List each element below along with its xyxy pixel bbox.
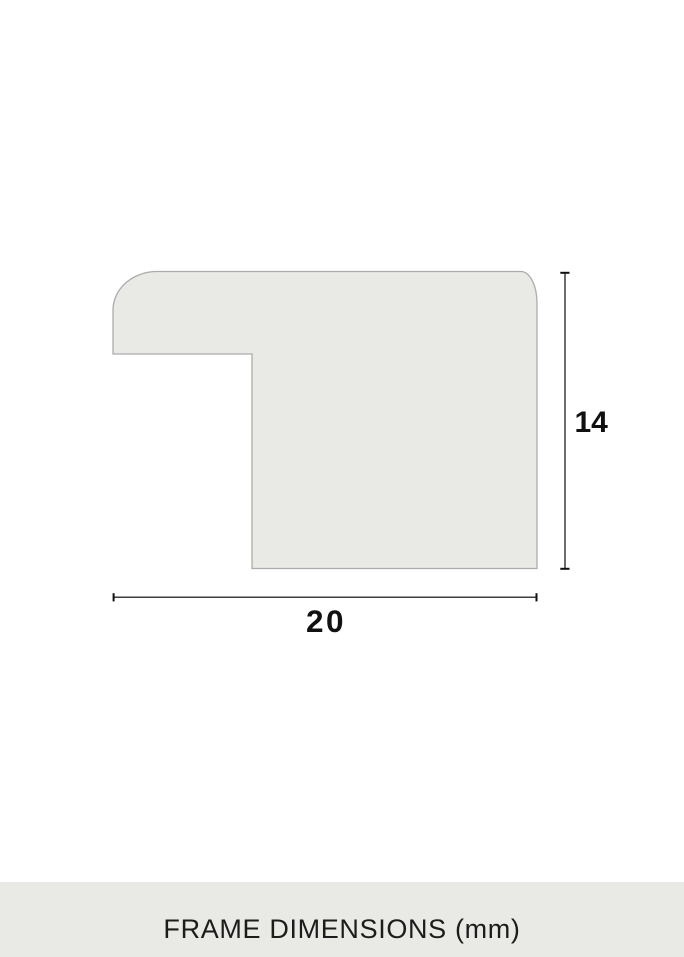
svg-text:20: 20 bbox=[306, 603, 346, 639]
svg-text:FRAME DIMENSIONS (mm): FRAME DIMENSIONS (mm) bbox=[163, 914, 520, 944]
svg-text:14: 14 bbox=[575, 406, 609, 439]
